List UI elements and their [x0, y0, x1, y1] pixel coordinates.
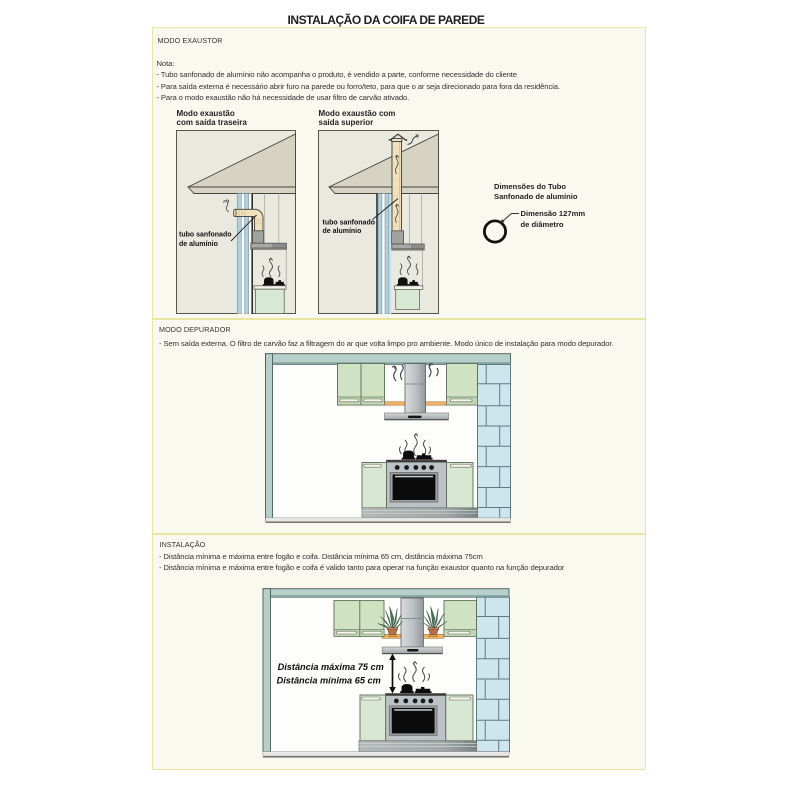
svg-text:de alumínio: de alumínio	[179, 241, 218, 248]
svg-text:Distância máxima 75 cm: Distância máxima 75 cm	[278, 662, 384, 672]
svg-text:Distância mínima 65 cm: Distância mínima 65 cm	[277, 676, 381, 686]
svg-text:de alumínio: de alumínio	[323, 228, 362, 235]
svg-text:tubo sanfonado: tubo sanfonado	[323, 220, 376, 227]
svg-text:tubo sanfonado: tubo sanfonado	[179, 232, 232, 239]
